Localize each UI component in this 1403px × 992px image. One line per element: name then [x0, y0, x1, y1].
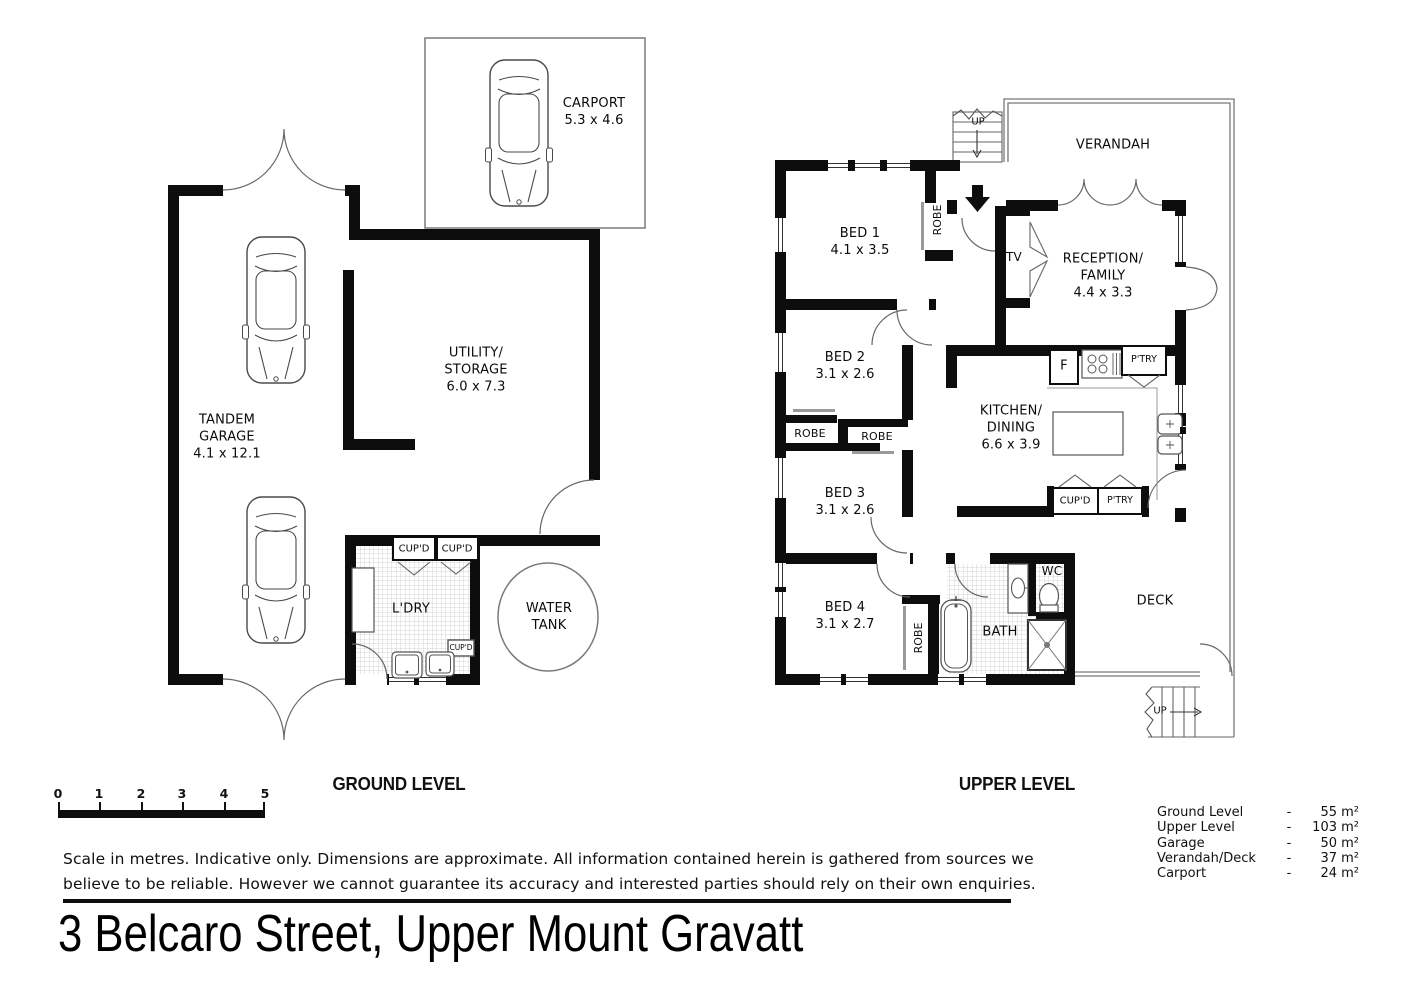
wc-label: WC — [1042, 564, 1063, 580]
bathtub-icon — [941, 596, 971, 672]
sink-icon — [1158, 414, 1186, 454]
laundry-label: L'DRY — [392, 602, 430, 619]
pantry-label: P'TRY — [1107, 495, 1133, 507]
island-bench-icon — [1053, 412, 1123, 455]
area-row-separator: - — [1277, 836, 1301, 851]
window-icon — [820, 674, 868, 685]
area-row-value: 24 m² — [1301, 866, 1359, 881]
robe-label: ROBE — [931, 205, 945, 236]
window-icon — [828, 160, 910, 171]
scale-tick — [99, 802, 101, 810]
area-row-separator: - — [1277, 805, 1301, 820]
bench-icon — [352, 568, 374, 632]
scale-tick — [141, 802, 143, 810]
area-row-label: Carport — [1157, 866, 1277, 881]
window-icon — [775, 563, 786, 617]
area-summary: Ground Level - 55 m² Upper Level - 103 m… — [1157, 805, 1359, 881]
bath-label: BATH — [982, 625, 1017, 642]
robe-label: ROBE — [861, 430, 893, 444]
area-row-label: Upper Level — [1157, 820, 1277, 835]
bed1-label: BED 1 4.1 x 3.5 — [830, 226, 889, 260]
scale-tick-label: 0 — [54, 786, 63, 801]
area-row-value: 103 m² — [1301, 820, 1359, 835]
cupboard-door-marks — [1059, 475, 1136, 487]
area-row-separator: - — [1277, 851, 1301, 866]
car-icon — [243, 237, 310, 383]
ground-floor-plan — [168, 38, 645, 740]
scale-tick — [58, 802, 60, 810]
shower-icon — [1028, 620, 1066, 670]
tandem-garage-label: TANDEM GARAGE 4.1 x 12.1 — [193, 413, 261, 464]
window-icon — [1175, 385, 1186, 413]
scale-tick-label: 3 — [178, 786, 187, 801]
tv-label: TV — [1006, 250, 1022, 266]
area-row-label: Garage — [1157, 836, 1277, 851]
bifold-door-icon — [1110, 179, 1162, 205]
area-row-label: Verandah/Deck — [1157, 851, 1277, 866]
scale-tick — [182, 802, 184, 810]
stairs-up-label: UP — [1153, 705, 1166, 718]
deck-label: DECK — [1137, 594, 1174, 611]
carport-label: CARPORT 5.3 x 4.6 — [563, 96, 626, 130]
sink-icon — [426, 652, 454, 676]
reception-family-label: RECEPTION/ FAMILY 4.4 x 3.3 — [1063, 252, 1144, 303]
area-row-value: 37 m² — [1301, 851, 1359, 866]
upper-level-title: UPPER LEVEL — [959, 773, 1075, 795]
ground-level-title: GROUND LEVEL — [332, 773, 465, 795]
scale-tick — [263, 802, 265, 810]
car-icon — [243, 497, 310, 643]
kitchen-fixtures — [1047, 346, 1186, 514]
entry-arrow-icon — [965, 185, 990, 212]
area-row-value: 55 m² — [1301, 805, 1359, 820]
scale-bar-rule — [58, 810, 265, 818]
stairs-up-label: UP — [971, 116, 984, 129]
cupboard-label: CUP'D — [1060, 495, 1091, 508]
bed4-label: BED 4 3.1 x 2.7 — [815, 600, 874, 634]
sink-icon — [392, 652, 422, 678]
cupboard-label: CUP'D — [399, 543, 430, 556]
cupboard-label: CUP'D — [442, 543, 473, 556]
area-row-label: Ground Level — [1157, 805, 1277, 820]
bed3-label: BED 3 3.1 x 2.6 — [815, 486, 874, 520]
scale-tick — [224, 802, 226, 810]
robe-label: ROBE — [794, 427, 826, 441]
area-row-separator: - — [1277, 820, 1301, 835]
floorplan-page: { "title": "3 Belcaro Street, Upper Moun… — [0, 0, 1403, 992]
utility-storage-label: UTILITY/ STORAGE 6.0 x 7.3 — [444, 346, 507, 397]
verandah-label: VERANDAH — [1076, 138, 1150, 155]
cupboard-small-label: CUP'D — [449, 643, 472, 653]
fridge-label: F — [1060, 359, 1068, 376]
area-row-separator: - — [1277, 866, 1301, 881]
scale-tick-label: 1 — [95, 786, 104, 801]
scale-tick-label: 2 — [137, 786, 146, 801]
water-tank-label: WATER TANK — [526, 601, 572, 635]
scale-bar: 0 1 2 3 4 5 — [58, 786, 265, 820]
scale-tick-label: 5 — [261, 786, 270, 801]
bed2-label: BED 2 3.1 x 2.6 — [815, 350, 874, 384]
divider-rule — [63, 899, 1011, 903]
property-address-title: 3 Belcaro Street, Upper Mount Gravatt — [58, 904, 803, 964]
cupboard-door-marks — [1128, 375, 1160, 387]
window-icon — [938, 674, 986, 685]
window-icon — [1175, 216, 1186, 262]
stove-icon — [1082, 350, 1122, 378]
scale-tick-label: 4 — [220, 786, 229, 801]
disclaimer-text: Scale in metres. Indicative only. Dimens… — [63, 847, 1093, 897]
kitchen-dining-label: KITCHEN/ DINING 6.6 x 3.9 — [980, 404, 1042, 455]
robe-label: ROBE — [912, 623, 926, 654]
window-icon — [775, 458, 786, 498]
pantry-label: P'TRY — [1131, 354, 1157, 366]
bifold-door-icon — [1058, 179, 1110, 205]
tv-unit-icon — [1030, 222, 1047, 297]
vanity-sink-icon — [1008, 564, 1029, 613]
window-icon — [775, 333, 786, 372]
area-row-value: 50 m² — [1301, 836, 1359, 851]
window-icon — [775, 218, 786, 252]
car-icon — [486, 60, 553, 206]
toilet-icon — [1040, 584, 1059, 613]
